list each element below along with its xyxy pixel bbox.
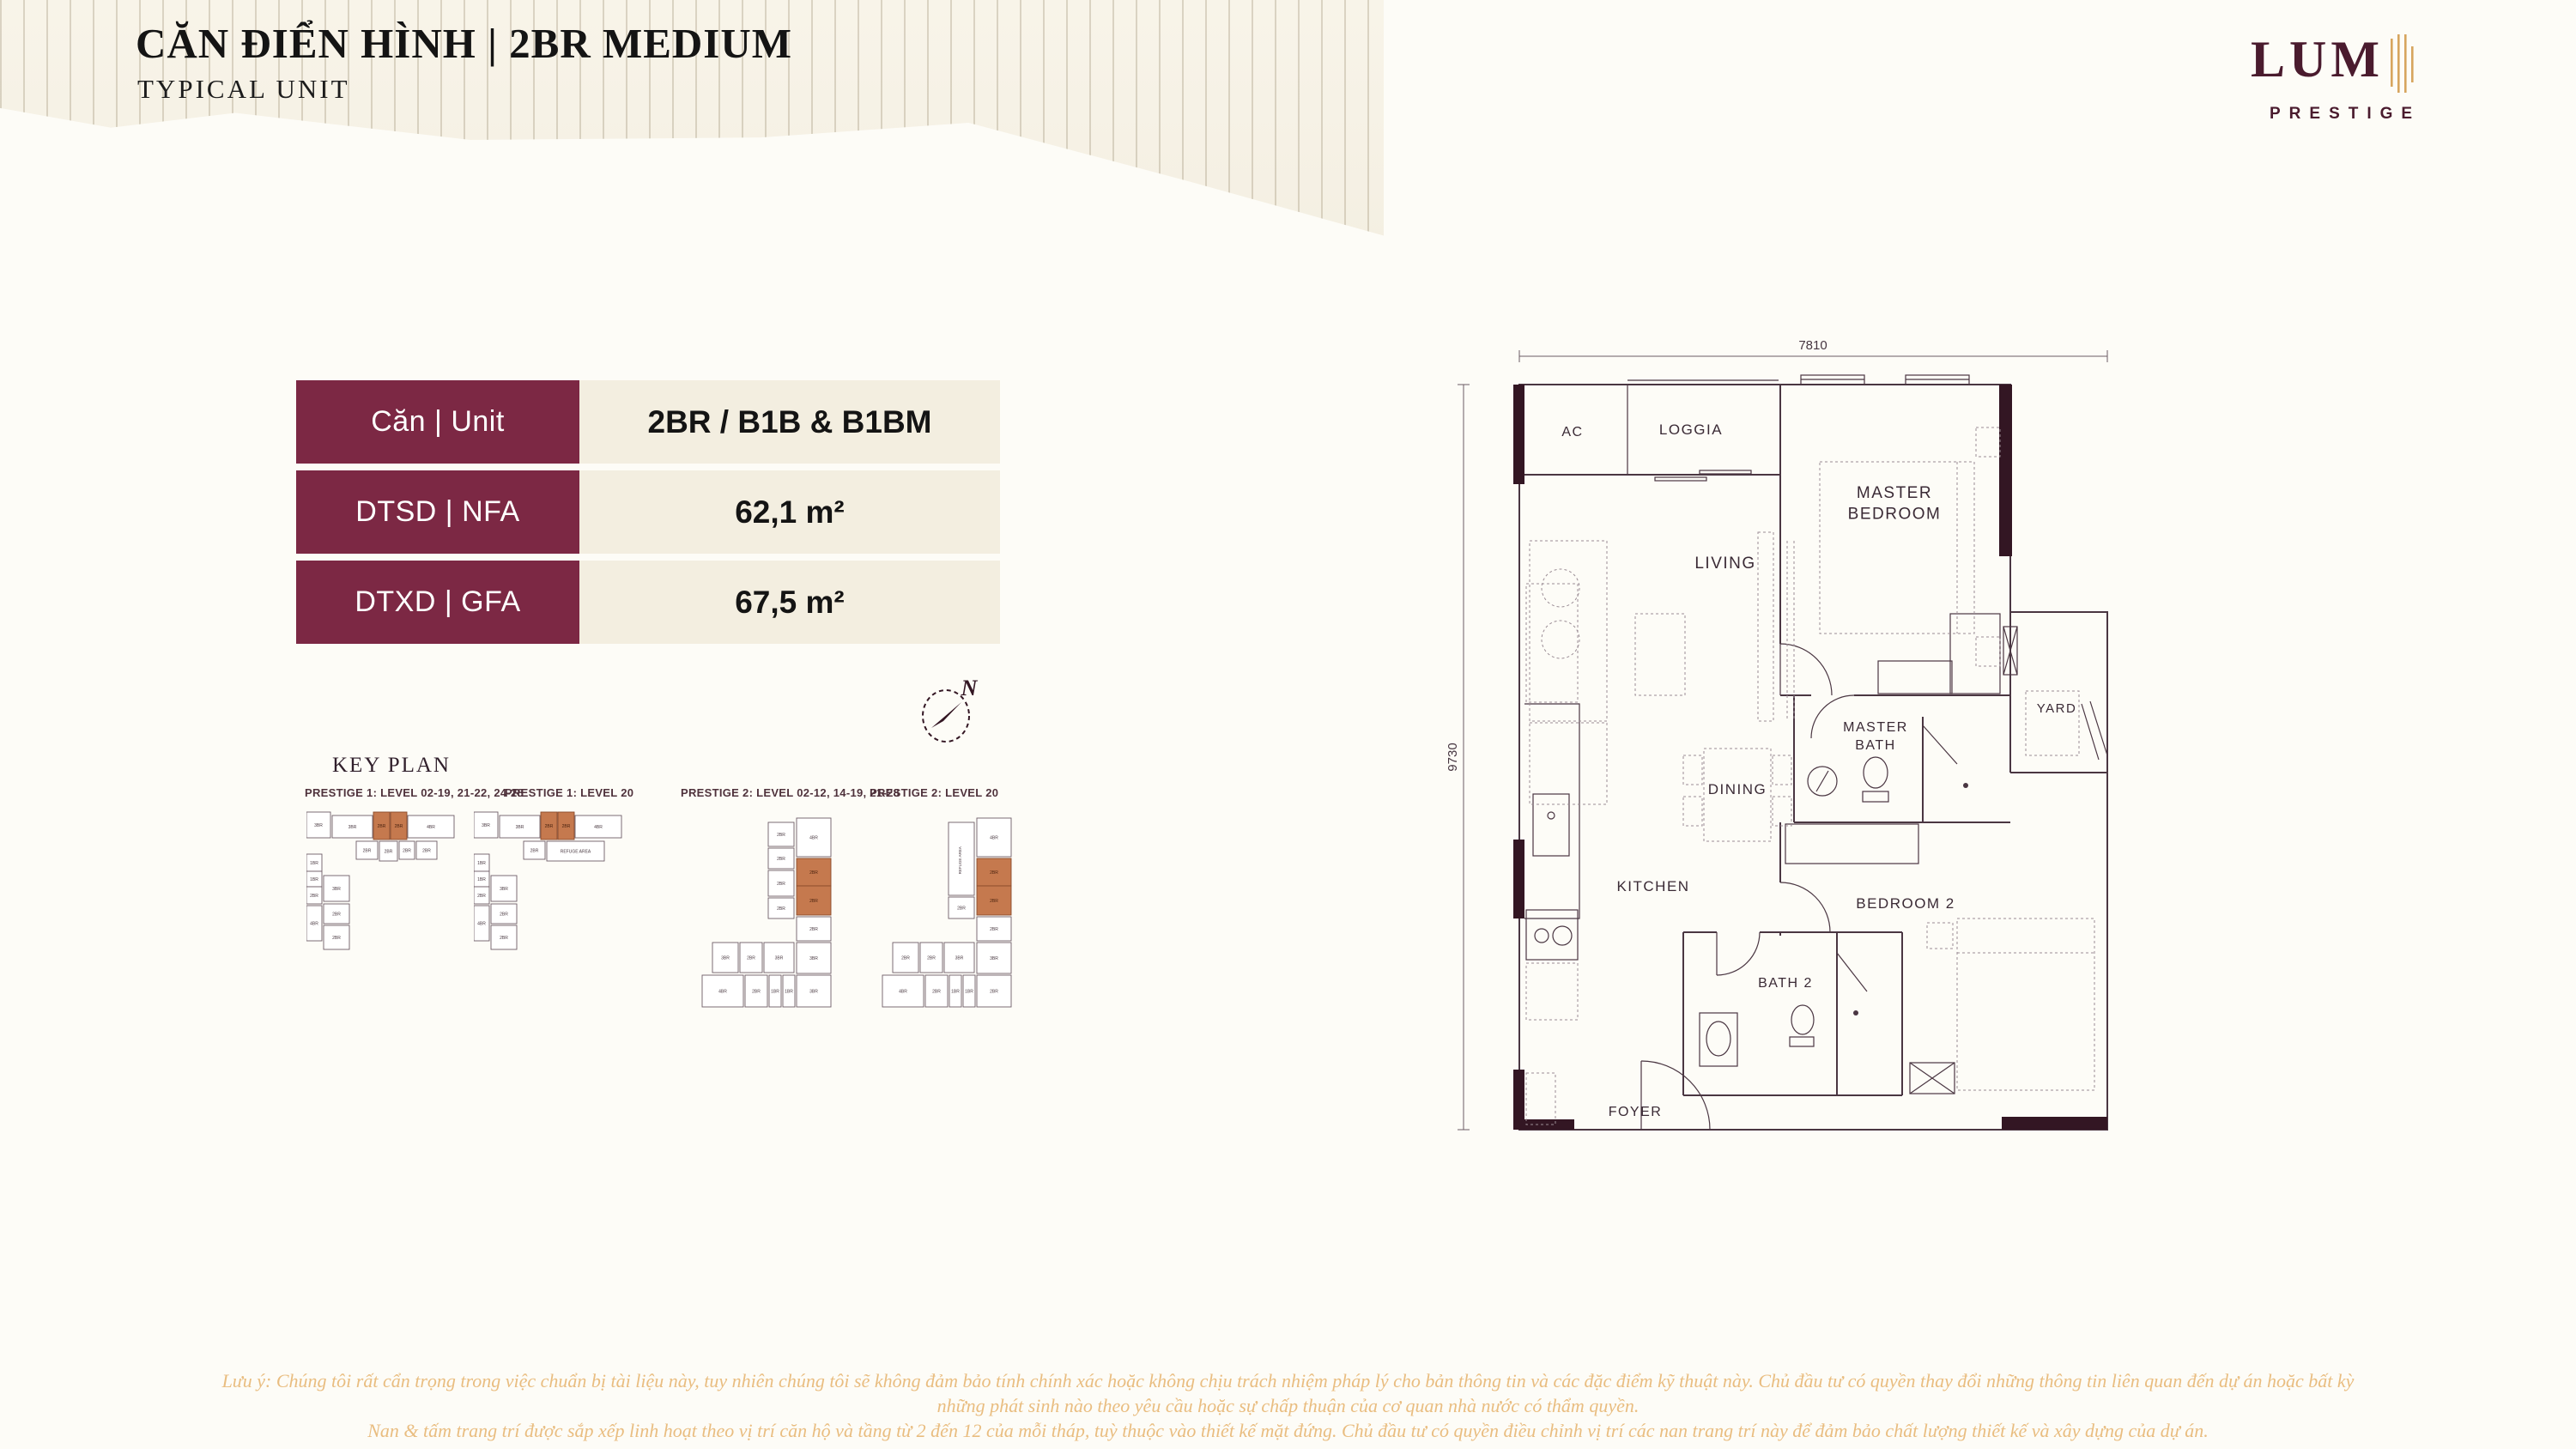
keyplan-unit-label: 2BR <box>777 833 785 838</box>
disclaimer-line: Nan & tấm trang trí được sắp xếp linh ho… <box>0 1418 2576 1443</box>
keyplan-unit-label: 1BR <box>965 989 973 994</box>
furniture-outlines <box>1530 427 2107 1090</box>
keyplan-unit-label: 4BR <box>594 825 603 830</box>
table-row: DTXD | GFA 67,5 m² <box>296 561 1000 644</box>
north-compass-icon: N <box>920 673 989 750</box>
keyplan-mini-map-1: 3BR3BR2BR2BR4BR2BR2BR2BR2BR1BR1BR2BR4BR3… <box>306 809 455 951</box>
keyplan-unit-label: 2BR <box>932 989 941 994</box>
keyplan-unit-label: 2BR <box>385 849 393 854</box>
keyplan-unit-label: 2BR <box>378 824 386 829</box>
keyplan-unit-label: 4BR <box>899 989 907 994</box>
keyplan-unit-label: 2BR <box>927 955 936 961</box>
keyplan-unit-label: 3BR <box>721 955 730 961</box>
keyplan-unit-label: 2BR <box>990 899 998 904</box>
room-label-yard: YARD <box>2037 701 2077 716</box>
floorplan-drawing: 7810 9730 <box>1442 326 2163 1167</box>
keyplan-unit-label: 1BR <box>477 877 486 882</box>
room-label-kitchen: KITCHEN <box>1616 878 1689 894</box>
keyplan-unit-label: 3BR <box>809 989 818 994</box>
table-row: DTSD | NFA 62,1 m² <box>296 470 1000 554</box>
table-row: Căn | Unit 2BR / B1B & B1BM <box>296 380 1000 464</box>
room-label-bath2: BATH 2 <box>1758 976 1813 991</box>
table-row-label: Căn | Unit <box>296 380 579 464</box>
lumi-i-bars-icon <box>2391 34 2421 94</box>
page-subtitle: TYPICAL UNIT <box>137 74 350 105</box>
keyplan-title-1: PRESTIGE 1: LEVEL 02-19, 21-22, 24-28 <box>305 786 524 799</box>
keyplan-mini-map-2: 3BR3BR2BR2BR4BR2BRREFUGE AREA1BR1BR2BR4B… <box>474 809 622 951</box>
keyplan-unit-label: 2BR <box>477 894 486 899</box>
keyplan-unit-label: 3BR <box>809 956 818 961</box>
keyplan-unit-label: 2BR <box>901 955 910 961</box>
keyplan-unit-label: 2BR <box>747 955 755 961</box>
keyplan-unit-label: 2BR <box>777 882 785 887</box>
disclaimer-line: Lưu ý: Chúng tôi rất cẩn trọng trong việ… <box>0 1368 2576 1393</box>
keyplan-unit-label: 2BR <box>777 857 785 862</box>
keyplan-unit-label: 4BR <box>310 921 318 926</box>
keyplan-unit-label: 2BR <box>777 906 785 912</box>
keyplan-unit-label: REFUGE AREA <box>958 846 962 874</box>
compass-north-label: N <box>961 676 979 700</box>
table-row-label: DTSD | NFA <box>296 470 579 554</box>
keyplan-unit-label: 3BR <box>332 887 341 892</box>
keyplan-unit-label: 3BR <box>500 887 508 892</box>
keyplan-unit-label: 2BR <box>395 824 403 829</box>
keyplan-unit-label: 2BR <box>403 848 411 853</box>
keyplan-unit-label: 2BR <box>809 927 818 932</box>
keyplan-mini-map-3: 2BR2BR2BR2BR4BR2BR2BR2BR3BR3BR2BR3BR4BR2… <box>687 814 833 1011</box>
keyplan-unit-label: 3BR <box>349 825 357 830</box>
keyplan-unit-label: 1BR <box>477 861 486 866</box>
logo-wordmark: LUM <box>2251 29 2384 89</box>
keyplan-unit-label: 2BR <box>990 870 998 876</box>
keyplan-unit-label: 2BR <box>809 870 818 876</box>
keyplan-mini-map-4: REFUGE AREA2BR4BR2BR2BR2BR3BR2BR2BR3BR4B… <box>867 814 1013 1011</box>
disclaimer-text: Lưu ý: Chúng tôi rất cẩn trọng trong việ… <box>0 1368 2576 1443</box>
keyplan-unit-label: 2BR <box>990 927 998 932</box>
keyplan-unit-label: 2BR <box>752 989 761 994</box>
keyplan-unit-label: 4BR <box>990 835 998 840</box>
keyplan-unit-label: 4BR <box>477 921 486 926</box>
keyplan-unit-label: 2BR <box>957 906 966 911</box>
table-row-value: 2BR / B1B & B1BM <box>579 380 1000 464</box>
room-label-dining: DINING <box>1708 781 1767 797</box>
room-label-loggia: LOGGIA <box>1659 421 1723 438</box>
keyplan-unit-label: 1BR <box>310 877 318 882</box>
keyplan-unit-label: 3BR <box>314 823 323 828</box>
dimension-width-label: 7810 <box>1798 338 1827 353</box>
keyplan-title-2: PRESTIGE 1: LEVEL 20 <box>505 786 633 799</box>
keyplan-unit-label: 2BR <box>562 824 571 829</box>
dimension-height-label: 9730 <box>1446 743 1460 771</box>
keyplan-unit-label: 2BR <box>363 848 372 853</box>
keyplan-unit-label: 2BR <box>332 912 341 917</box>
table-row-label: DTXD | GFA <box>296 561 579 644</box>
keyplan-unit-label: 1BR <box>310 861 318 866</box>
keyplan-title-3: PRESTIGE 2: LEVEL 02-12, 14-19, 21-28 <box>681 786 900 799</box>
keyplan-unit-label: 3BR <box>990 956 998 961</box>
table-row-value: 67,5 m² <box>579 561 1000 644</box>
room-label-master-bedroom: MASTERBEDROOM <box>1848 484 1942 524</box>
keyplan-unit-label: 3BR <box>955 955 964 961</box>
keyplan-unit-label: REFUGE AREA <box>561 849 591 854</box>
keyplan-unit-label: 2BR <box>332 936 341 941</box>
room-label-master-bath: MASTERBATH <box>1843 720 1908 753</box>
keyplan-heading: KEY PLAN <box>332 754 451 778</box>
keyplan-unit-label: 2BR <box>310 894 318 899</box>
keyplan-unit-label: 3BR <box>516 825 524 830</box>
brand-logo: LUM PRESTIGE <box>2251 29 2508 124</box>
bathroom-fixtures <box>1700 757 1968 1066</box>
keyplan-title-4: PRESTIGE 2: LEVEL 20 <box>870 786 998 799</box>
keyplan-unit-label: 4BR <box>427 825 435 830</box>
keyplan-unit-label: 3BR <box>482 823 490 828</box>
room-label-bedroom2: BEDROOM 2 <box>1856 895 1955 912</box>
table-row-value: 62,1 m² <box>579 470 1000 554</box>
keyplan-unit-label: 4BR <box>718 989 727 994</box>
keyplan-unit-label: 3BR <box>775 955 784 961</box>
keyplan-unit-label: 2BR <box>500 912 508 917</box>
window-symbols <box>1627 375 1969 385</box>
keyplan-unit-label: 2BR <box>530 848 539 853</box>
logo-tagline: PRESTIGE <box>2270 105 2508 124</box>
unit-info-table: Căn | Unit 2BR / B1B & B1BM DTSD | NFA 6… <box>296 380 1000 651</box>
keyplan-unit-label: 1BR <box>951 989 960 994</box>
keyplan-unit-label: 4BR <box>809 835 818 840</box>
disclaimer-line: những phát sinh nào theo yêu cầu hoặc sự… <box>0 1393 2576 1418</box>
room-label-ac: AC <box>1561 425 1583 440</box>
thick-wall-segments <box>1513 385 2107 1130</box>
room-label-living: LIVING <box>1694 555 1755 573</box>
interior-walls <box>1524 385 2107 1095</box>
keyplan-unit-label: 2BR <box>990 989 998 994</box>
keyplan-unit-label: 2BR <box>500 936 508 941</box>
keyplan-unit-label: 2BR <box>545 824 554 829</box>
room-label-foyer: FOYER <box>1609 1105 1663 1119</box>
kitchen-fixtures <box>1524 584 1579 1125</box>
keyplan-unit-label: 2BR <box>809 899 818 904</box>
keyplan-unit-label: 1BR <box>771 989 779 994</box>
keyplan-unit-label: 2BR <box>422 848 431 853</box>
keyplan-unit-label: 1BR <box>785 989 793 994</box>
brochure-page: CĂN ĐIỂN HÌNH | 2BR MEDIUM TYPICAL UNIT … <box>0 0 2576 1449</box>
page-title: CĂN ĐIỂN HÌNH | 2BR MEDIUM <box>136 19 792 68</box>
